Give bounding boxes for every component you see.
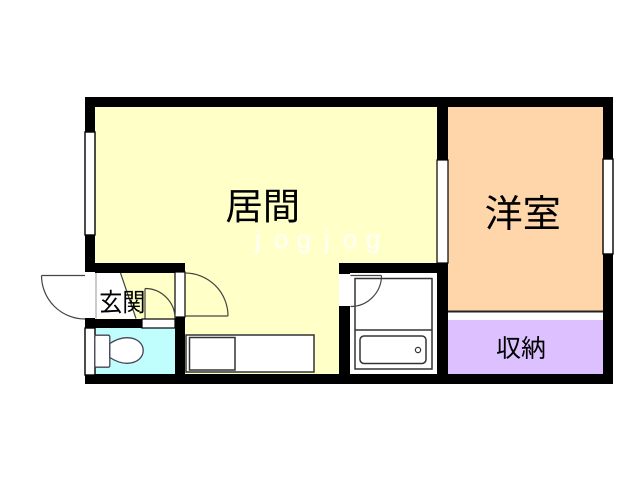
svg-text:j: j xyxy=(323,224,330,254)
svg-text:j: j xyxy=(254,224,261,254)
svg-text:o: o xyxy=(343,224,357,254)
svg-text:g: g xyxy=(297,224,311,254)
svg-text:g: g xyxy=(366,224,380,254)
svg-text:o: o xyxy=(274,224,288,254)
